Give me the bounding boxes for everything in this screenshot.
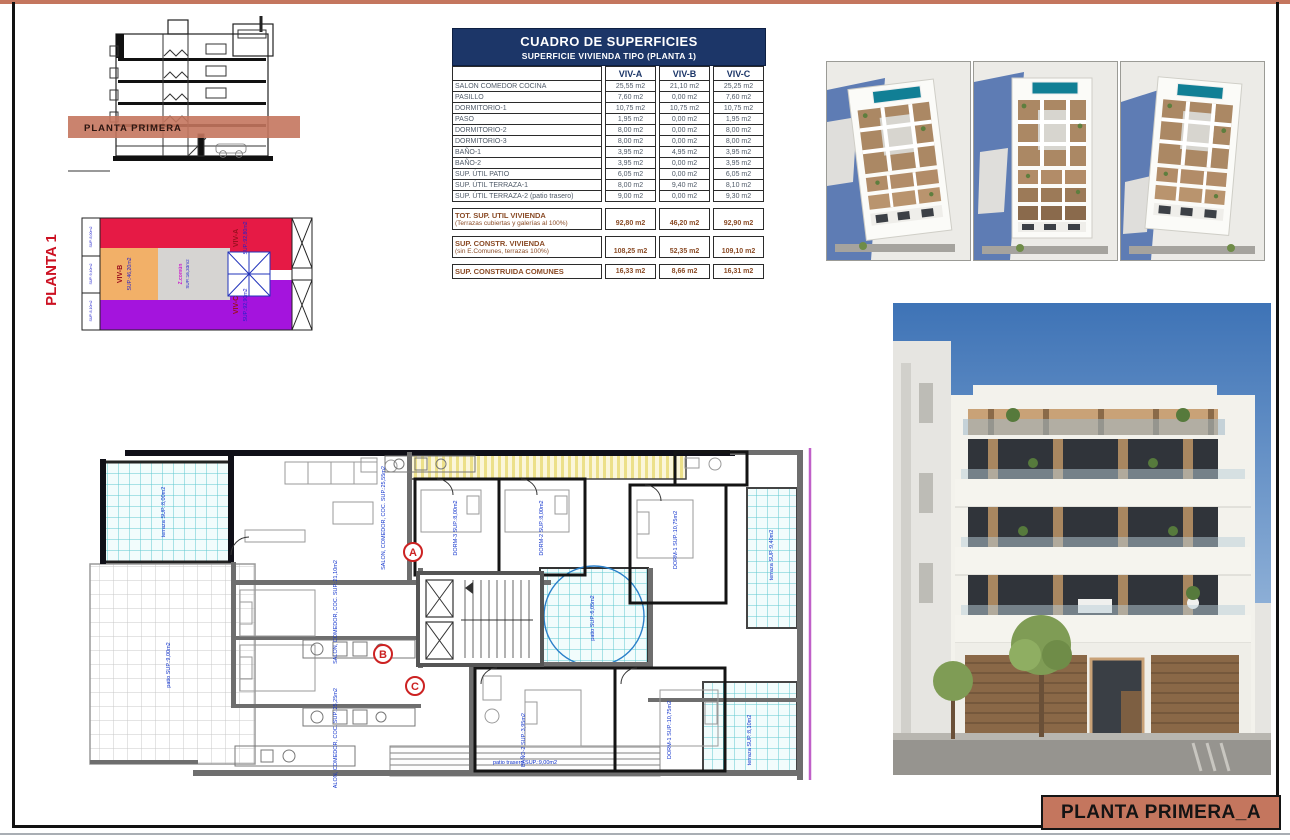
plan-sheet: PLANTA PRIMERA PLANTA 1 SUP.:8,00m2 SUP.… [0, 0, 1290, 840]
room-label: DORM-3 SUP.:8,00m2 [453, 500, 459, 555]
room-label: BAÑO-2 SUP.:3,95m2 [520, 713, 527, 767]
room-label: patio SUP.:6,05m2 [590, 595, 596, 640]
viv-c-sup: SUP.:92,90m2 [243, 288, 249, 321]
column-header-row: VIV-A VIV-B VIV-C [452, 65, 766, 81]
aerial-render-2 [973, 61, 1118, 261]
title-banner: PLANTA PRIMERA_A [1041, 795, 1281, 830]
surface-table-title: CUADRO DE SUPERFICIES [453, 29, 765, 51]
room-label: DORM-2 SUP.:8,00m2 [539, 500, 545, 555]
col-viv-a: VIV-A [605, 66, 656, 81]
room-label: DORM-1 SUP.:10,75m2 [673, 511, 679, 569]
total-util-row: TOT. SUP. UTIL VIVIENDA (Terrazas cubier… [452, 208, 766, 230]
sheet-right-border [1276, 2, 1279, 828]
surface-table-header: CUADRO DE SUPERFICIES SUPERFICIE VIVIEND… [452, 28, 766, 66]
viv-a-sup: SUP.:92,80m2 [243, 221, 249, 254]
balcony-label: SUP.:8,00m2 [89, 227, 93, 248]
room-label: terraza SUP.:9,40m2 [769, 530, 775, 581]
balcony-label: SUP.:9,40m2 [89, 264, 93, 285]
sheet-left-border [12, 2, 15, 828]
zcomun-label: Z.común [178, 264, 184, 285]
facade-render [893, 303, 1271, 775]
key-plan-title: PLANTA 1 [43, 234, 60, 306]
room-label: DORM-1 SUP.:10,75m2 [667, 701, 673, 759]
planta-primera-band-label: PLANTA PRIMERA [84, 123, 182, 134]
key-plan: PLANTA 1 SUP.:8,00m2 SUP.:9,40m2 SUP.:8,… [42, 198, 322, 338]
marker-a: A [409, 547, 417, 559]
room-label: terraza SUP.:8,10m2 [747, 715, 753, 766]
surface-table: CUADRO DE SUPERFICIES SUPERFICIE VIVIEND… [452, 28, 766, 279]
room-label: patio SUP.:9,00m2 [166, 642, 172, 687]
room-label: SALON, COMEDOR, COC. SUP.:25,25m2 [333, 688, 339, 788]
viv-b-sup: SUP.:46,20m2 [127, 257, 133, 290]
room-label: patio trasero SUP.:9,00m2 [493, 760, 557, 766]
marker-c: C [411, 681, 419, 693]
room-label: SALON, COMEDOR, COC. SUP.:25,55m2 [381, 466, 387, 570]
room-label: SALON, COMEDOR, COC. SUP.:21,10m2 [333, 560, 339, 664]
zcomun-sup: SUP.:16,33m2 [185, 259, 190, 289]
terrace-topleft [103, 462, 231, 562]
room-label: terraza SUP.:8,00m2 [161, 487, 167, 538]
viv-c-label: VIV-C [233, 296, 240, 314]
sheet-title: PLANTA PRIMERA_A [1061, 802, 1261, 824]
total-comunes-row: SUP. CONSTRUIDA COMUNES 16,33 m2 8,66 m2… [452, 264, 766, 279]
patio-bottomleft [90, 564, 255, 764]
top-accent-bar [0, 0, 1290, 4]
balcony-label: SUP.:8,10m2 [89, 301, 93, 322]
total-constr-row: SUP. CONSTR. VIVIENDA (sin E.Comunes, te… [452, 236, 766, 258]
aerial-render-3 [1120, 61, 1265, 261]
cross-section-drawing: PLANTA PRIMERA [68, 16, 308, 184]
viv-b-label: VIV-B [117, 265, 124, 283]
marker-b: B [379, 649, 387, 661]
aerial-render-1 [826, 61, 971, 261]
surface-table-subtitle: SUPERFICIE VIVIENDA TIPO (PLANTA 1) [453, 51, 765, 65]
col-viv-c: VIV-C [713, 66, 764, 81]
stair-core [418, 573, 542, 665]
floor-plan: A B C terraza SUP.:8,00m2 SALON, COMEDOR… [85, 440, 815, 788]
footer-divider [0, 833, 1290, 835]
table-row: SUP. ÚTIL TERRAZA-2 (patio trasero)9,00 … [452, 190, 766, 202]
viv-a-label: VIV-A [233, 229, 240, 247]
col-viv-b: VIV-B [659, 66, 710, 81]
